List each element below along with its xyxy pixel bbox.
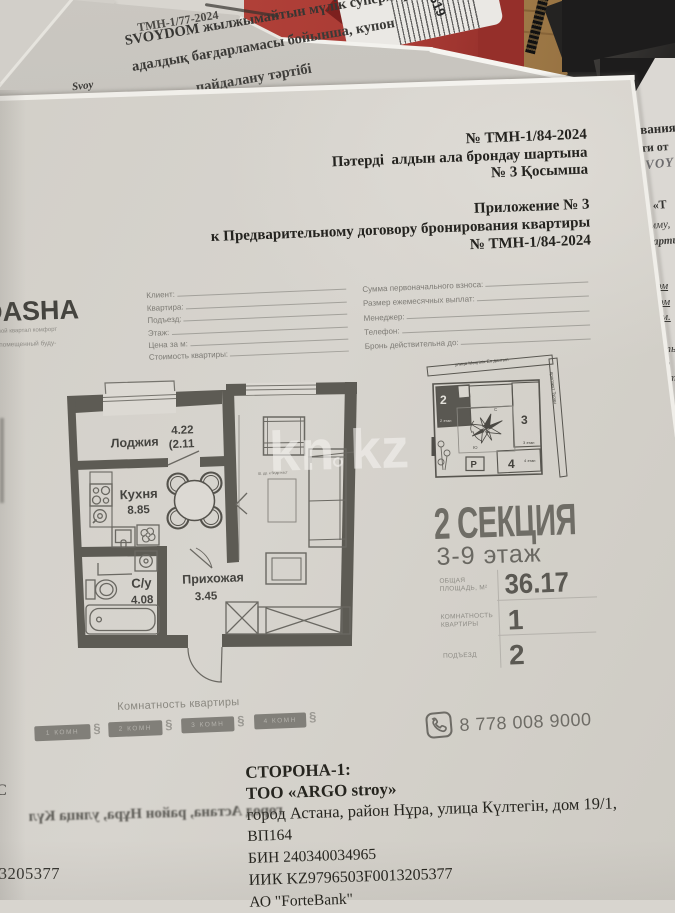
svg-text:4.08: 4.08 — [131, 594, 154, 607]
svg-text:(2.11: (2.11 — [169, 438, 196, 451]
svg-text:улица Мәңгілік Ел дангыл: улица Мәңгілік Ел дангыл — [455, 357, 509, 367]
svg-text:4.22: 4.22 — [171, 424, 194, 437]
svg-text:Прихожая: Прихожая — [182, 570, 244, 586]
svg-text:Лоджия: Лоджия — [110, 435, 159, 451]
svg-text:2 этап: 2 этап — [440, 418, 451, 423]
svg-text:проспект Туран: проспект Туран — [549, 372, 558, 405]
svg-text:3 этап: 3 этап — [523, 440, 534, 445]
svg-text:3: 3 — [521, 413, 528, 427]
svg-text:С/у: С/у — [131, 575, 153, 591]
svg-text:4 этап: 4 этап — [524, 458, 535, 463]
svg-text:P: P — [471, 460, 478, 471]
svg-text:8.85: 8.85 — [127, 504, 150, 517]
svg-text:Кухня: Кухня — [119, 486, 158, 503]
svg-text:Ю: Ю — [473, 445, 478, 450]
svg-text:3.45: 3.45 — [195, 590, 218, 603]
svg-text:2: 2 — [440, 393, 447, 407]
svg-text:С: С — [494, 407, 498, 412]
svg-text:4: 4 — [508, 457, 515, 471]
